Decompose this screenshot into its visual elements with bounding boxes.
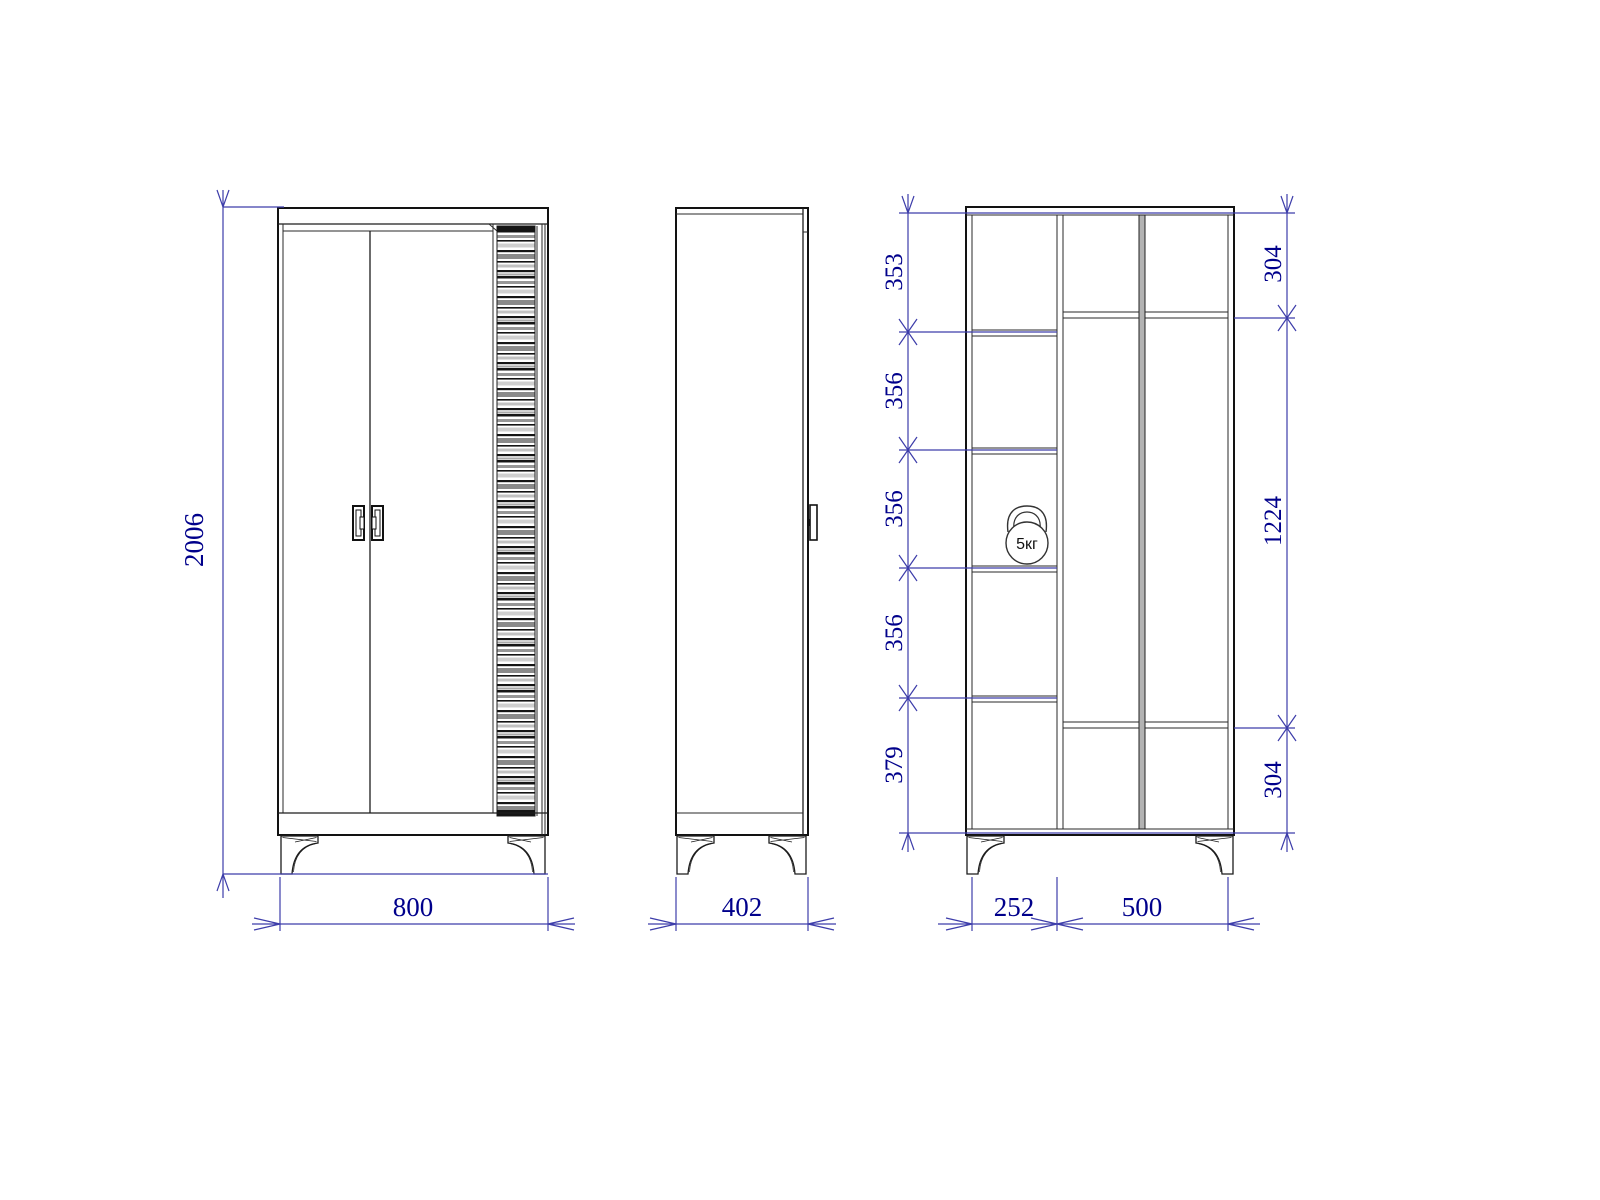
dim-shelf-3: 356 bbox=[881, 490, 908, 528]
technical-drawing: 5кг bbox=[0, 0, 1600, 1200]
front-left-leg bbox=[281, 836, 318, 874]
dim-front-width: 800 bbox=[393, 892, 434, 922]
front-view bbox=[278, 208, 548, 874]
side-body-outline bbox=[676, 208, 808, 835]
section-outline bbox=[966, 207, 1234, 835]
weight-capacity-label: 5кг bbox=[1016, 536, 1038, 553]
weight-capacity-icon: 5кг bbox=[1006, 506, 1048, 564]
dimension-linework bbox=[217, 190, 1296, 931]
dim-shelf-4: 356 bbox=[881, 614, 908, 652]
section-left-leg bbox=[967, 836, 1004, 874]
dim-shelf-2: 356 bbox=[881, 372, 908, 410]
side-right-leg bbox=[769, 836, 806, 874]
front-right-leg bbox=[508, 836, 545, 874]
section-right-leg bbox=[1196, 836, 1233, 874]
side-left-leg bbox=[677, 836, 714, 874]
dim-column-width: 252 bbox=[994, 892, 1035, 922]
dim-right-middle: 1224 bbox=[1260, 496, 1287, 547]
section-view: 5кг bbox=[966, 207, 1234, 874]
wardrobe-drawing-canvas: 5кг bbox=[0, 0, 1600, 1200]
dim-shelf-1: 353 bbox=[881, 253, 908, 291]
section-middle-divider bbox=[1139, 215, 1145, 829]
front-slatted-panel bbox=[497, 226, 535, 816]
side-view bbox=[676, 208, 817, 874]
front-right-door-handle[interactable] bbox=[372, 506, 383, 540]
dim-right-top: 304 bbox=[1260, 245, 1287, 283]
dim-wardrobe-width: 500 bbox=[1122, 892, 1163, 922]
front-slat-top-band bbox=[497, 226, 535, 231]
dim-shelf-5: 379 bbox=[881, 746, 908, 784]
dim-side-depth: 402 bbox=[722, 892, 763, 922]
front-left-door-handle[interactable] bbox=[353, 506, 364, 540]
dim-right-bottom: 304 bbox=[1260, 761, 1287, 799]
dim-overall-height: 2006 bbox=[179, 513, 209, 567]
